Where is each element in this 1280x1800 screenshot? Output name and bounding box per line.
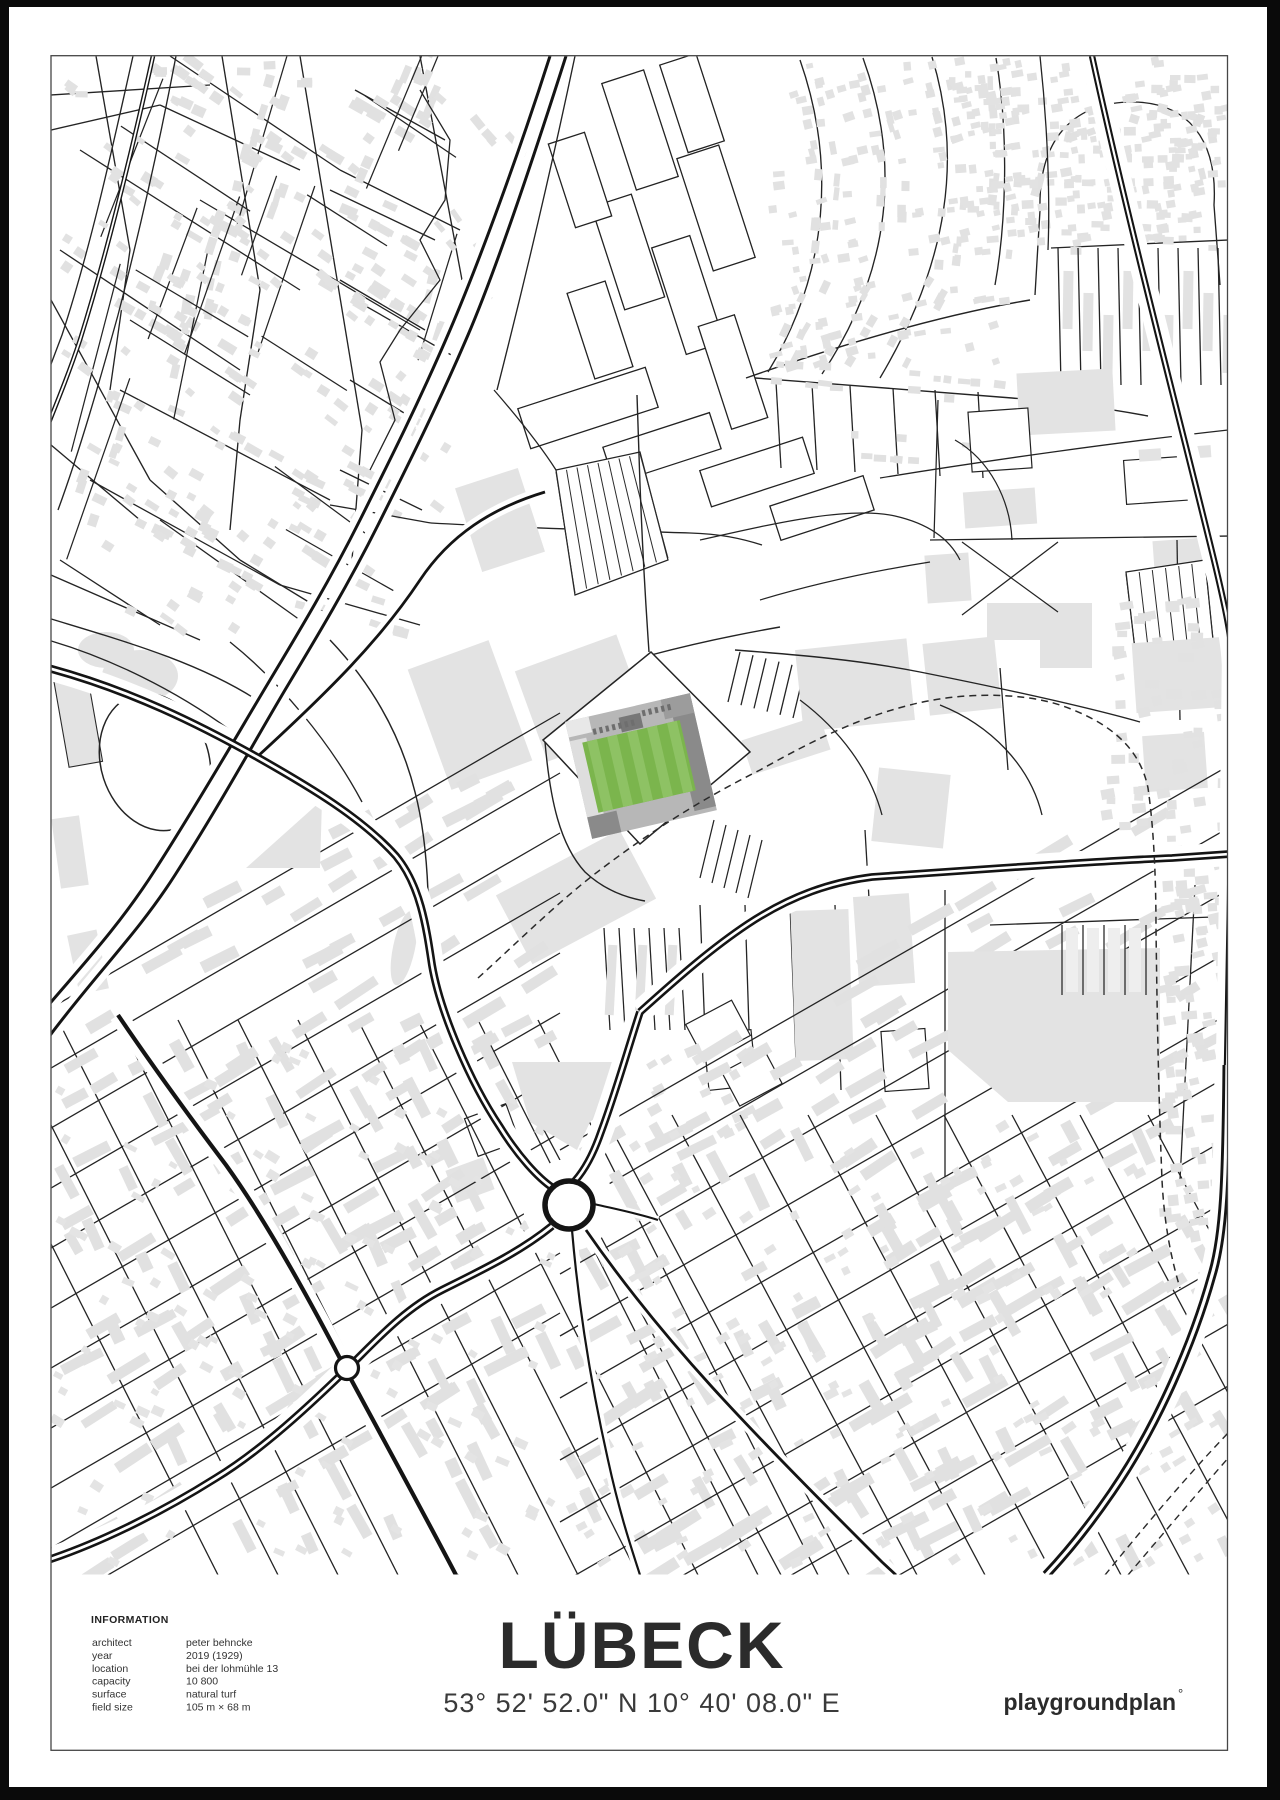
- svg-text:°: °: [1178, 1686, 1183, 1701]
- svg-text:53° 52' 52.0" N 10° 40' 08.0": 53° 52' 52.0" N 10° 40' 08.0" E: [443, 1688, 840, 1718]
- svg-text:10 800: 10 800: [186, 1676, 218, 1688]
- svg-text:surface: surface: [92, 1689, 127, 1701]
- svg-text:capacity: capacity: [92, 1676, 131, 1688]
- svg-text:playgroundplan: playgroundplan: [1004, 1689, 1177, 1715]
- svg-text:INFORMATION: INFORMATION: [91, 1614, 169, 1626]
- svg-text:year: year: [92, 1650, 113, 1662]
- svg-text:105 m × 68 m: 105 m × 68 m: [186, 1702, 251, 1714]
- svg-text:2019 (1929): 2019 (1929): [186, 1650, 243, 1662]
- svg-text:natural turf: natural turf: [186, 1689, 236, 1701]
- svg-text:architect: architect: [92, 1637, 132, 1649]
- svg-text:LÜBECK: LÜBECK: [499, 1608, 786, 1682]
- svg-text:bei der lohmühle 13: bei der lohmühle 13: [186, 1663, 278, 1675]
- svg-text:field size: field size: [92, 1702, 133, 1714]
- svg-text:peter behncke: peter behncke: [186, 1637, 253, 1649]
- svg-text:location: location: [92, 1663, 128, 1675]
